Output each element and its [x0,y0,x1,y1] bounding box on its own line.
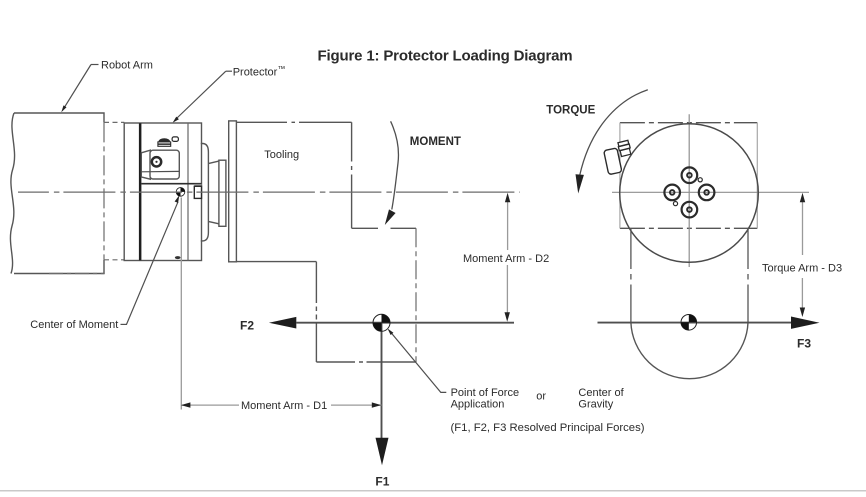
svg-text:Tooling: Tooling [264,149,299,161]
svg-text:Moment Arm - D1: Moment Arm - D1 [241,400,327,412]
svg-text:TORQUE: TORQUE [546,105,595,117]
svg-text:Protector™: Protector™ [233,64,286,78]
svg-text:Application: Application [451,399,505,411]
svg-text:(F1, F2, F3 Resolved Principal: (F1, F2, F3 Resolved Principal Forces) [451,422,645,434]
svg-text:Moment Arm - D2: Moment Arm - D2 [463,253,549,265]
svg-text:MOMENT: MOMENT [410,136,461,148]
svg-text:F2: F2 [240,319,254,333]
svg-text:Robot Arm: Robot Arm [101,60,153,72]
svg-text:Gravity: Gravity [578,398,613,410]
svg-text:Torque Arm - D3: Torque Arm - D3 [762,263,842,275]
svg-text:Figure 1: Protector Loading Di: Figure 1: Protector Loading Diagram [318,47,573,64]
svg-text:Center of Moment: Center of Moment [30,319,118,331]
svg-text:or: or [536,391,546,403]
svg-text:F1: F1 [375,475,389,489]
svg-text:Center of: Center of [578,387,624,399]
svg-text:F3: F3 [797,337,811,351]
svg-text:Point of Force: Point of Force [451,387,519,399]
